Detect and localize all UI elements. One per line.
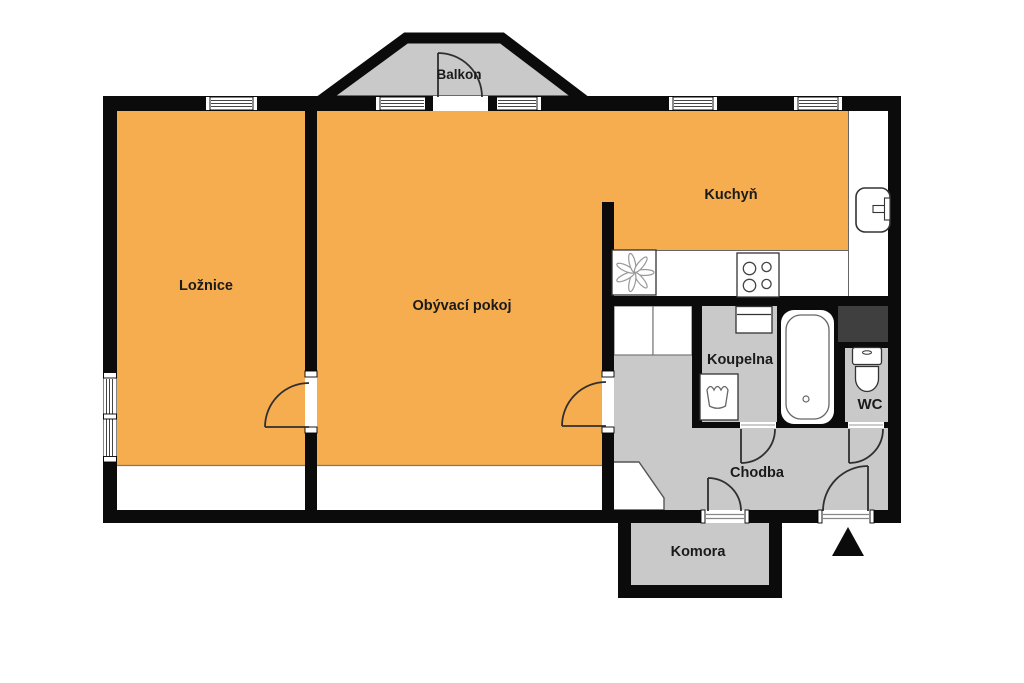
floor-plan: Balkon Ložnice Obývací pokoj Kuchyň Koup… [0, 0, 1024, 683]
installation-shaft [838, 306, 888, 342]
window-left-wall [104, 373, 117, 463]
wardrobe-right [653, 306, 692, 355]
window [497, 97, 542, 111]
cooktop-4-burner [737, 253, 779, 297]
bedroom-door-opening [305, 377, 317, 427]
bathtub [781, 310, 834, 424]
room-label-loznice: Ložnice [179, 278, 233, 294]
wall-bedroom-living [305, 111, 317, 510]
washbasin [700, 374, 738, 420]
built-in-wardrobes [614, 306, 692, 355]
room-label-kuchyn: Kuchyň [704, 187, 757, 203]
floor-plan-canvas: Balkon Ložnice Obývací pokoj Kuchyň Koup… [0, 0, 1024, 683]
balcony-door-opening [433, 96, 488, 111]
toilet [853, 348, 882, 392]
wardrobe-left [614, 306, 653, 355]
entrance-triangle-marker [832, 527, 864, 556]
window [794, 97, 843, 111]
kitchen-area [614, 111, 848, 250]
window [206, 97, 258, 111]
fan-appliance-symbol [612, 250, 656, 295]
living-room-area [317, 111, 614, 465]
room-label-koupelna: Koupelna [707, 352, 774, 368]
storage-door-opening [705, 510, 745, 523]
exterior-wall-right [888, 96, 901, 523]
room-label-komora: Komora [671, 544, 727, 560]
washing-machine [736, 307, 772, 334]
entrance-door-opening [822, 510, 870, 523]
room-label-wc: WC [858, 396, 883, 413]
room-label-chodba: Chodba [730, 465, 785, 481]
window [669, 97, 718, 111]
exterior-wall-bottom [103, 510, 901, 523]
living-door-opening [602, 377, 614, 427]
kitchen-sink [856, 188, 890, 232]
living-room-lower-strip [317, 465, 602, 510]
room-label-obyvaci: Obývací pokoj [412, 298, 511, 314]
bedroom-lower-strip [117, 465, 305, 510]
window [376, 97, 426, 111]
wall-wc-left [838, 348, 845, 422]
room-label-balkon: Balkon [436, 67, 481, 82]
storage-wall-bottom [618, 585, 782, 598]
wall-living-hallway [602, 202, 614, 510]
